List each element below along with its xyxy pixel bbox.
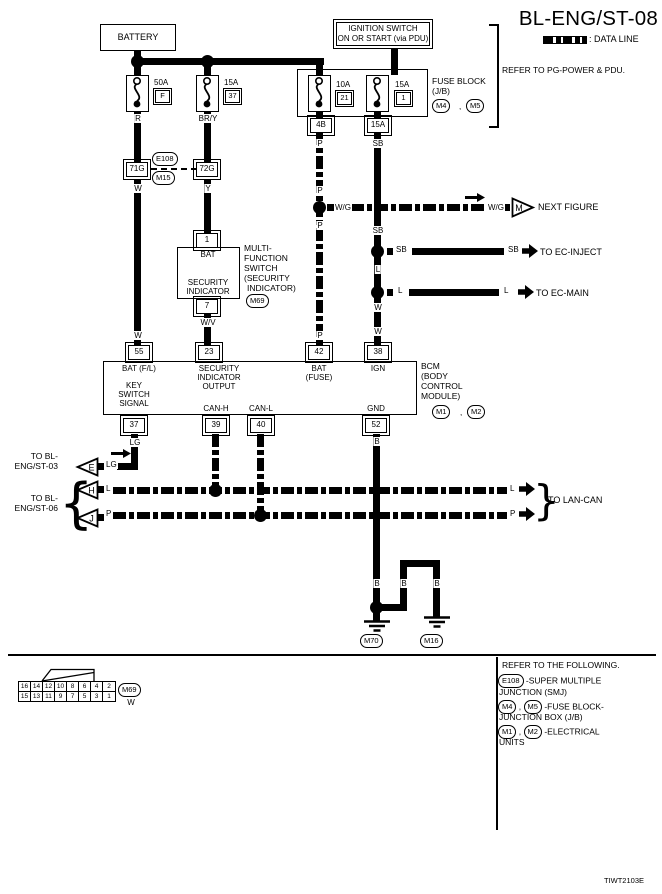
- bcm-pin-38: 38: [367, 345, 389, 360]
- refer-bracket: [497, 24, 499, 128]
- connector-key-tab-icon: [40, 668, 96, 682]
- smj-terminal-72g: 72G: [196, 162, 218, 177]
- wire-label-y: Y: [204, 184, 211, 193]
- st06-line2: ENG/ST-06: [12, 504, 58, 514]
- mfs-bat-label: BAT: [201, 250, 216, 259]
- pin-cell: 4: [91, 682, 103, 692]
- triangle-letter-m: M: [515, 203, 523, 213]
- footer-m45-text: -FUSE BLOCK-: [544, 701, 604, 711]
- wire-sb-branch: [412, 248, 504, 255]
- connector-ref-e108: E108: [152, 152, 178, 166]
- triangle-letter-j: J: [89, 514, 94, 524]
- bcm-label-ign: IGN: [371, 364, 385, 373]
- to-ec-inject-arrow-icon: [522, 244, 538, 258]
- lan-can-label: TO LAN-CAN: [548, 495, 602, 505]
- footer-title: REFER TO THE FOLLOWING.: [502, 661, 620, 671]
- footer-m12-text2: UNITS: [499, 738, 525, 748]
- fuse4-id: 1: [396, 92, 411, 105]
- wire-ignition-down: [391, 49, 398, 75]
- fuse-block-label2: (J/B): [432, 87, 450, 97]
- ground-ref-m70: M70: [360, 634, 383, 648]
- wire-label-w: W: [133, 184, 143, 193]
- ground-ref-m16: M16: [420, 634, 443, 648]
- fuse1-rating: 50A: [154, 78, 168, 87]
- wire-label-p: P: [316, 221, 323, 230]
- pin-cell: 12: [43, 682, 55, 692]
- bcm-pin-37: 37: [123, 418, 145, 433]
- fuse-10a-21: [308, 75, 331, 112]
- comma: ,: [460, 408, 462, 417]
- wire-label-lg: LG: [129, 438, 142, 447]
- wire-battery-feed: [134, 58, 324, 65]
- mfs-pin-7: 7: [196, 299, 218, 314]
- wire-label-p: P: [509, 509, 516, 518]
- pin-cell: 13: [31, 692, 43, 702]
- st03-line2: ENG/ST-03: [12, 462, 58, 472]
- bcm-pin-52: 52: [365, 418, 387, 433]
- connector-pin-view-m69: 16 14 12 10 8 6 4 2 15 13 11 9 7 5 3 1: [18, 681, 116, 702]
- bcm-label-sec2: INDICATOR: [197, 373, 240, 382]
- triangle-letter-e: E: [88, 463, 94, 473]
- next-figure-triangle-icon: M: [511, 197, 535, 218]
- st06-triangle-j-icon: J: [76, 508, 99, 528]
- bcm-pin-39: 39: [205, 418, 227, 433]
- bcm-label-canl: CAN-L: [249, 404, 273, 413]
- junction-dot: [313, 201, 326, 214]
- connector-nub: [387, 289, 393, 296]
- connector-color-label: W: [127, 698, 135, 707]
- junction-dot: [371, 245, 384, 258]
- smj-terminal-71g: 71G: [126, 162, 148, 177]
- wire-label-w: W: [373, 327, 383, 336]
- fuse2-id: 37: [225, 90, 240, 103]
- smj-dash-link: [151, 168, 197, 170]
- fuseblock-terminal-15a: 15A: [367, 118, 389, 133]
- pin-cell: 2: [103, 682, 115, 692]
- bcm-label-bat2: (FUSE): [306, 373, 333, 382]
- fuse-icon: [309, 76, 329, 110]
- connector-ref-m4: M4: [432, 99, 450, 113]
- wire-label-sb: SB: [507, 245, 520, 254]
- page-title: BL-ENG/ST-08: [498, 7, 658, 30]
- section-divider: [8, 654, 656, 656]
- wiring-diagram-page: BL-ENG/ST-08 : DATA LINE REFER TO PG-POW…: [0, 0, 662, 894]
- bcm-label-key1: KEY: [126, 381, 142, 390]
- wire-label-lg: LG: [105, 460, 118, 469]
- fuse-icon: [127, 76, 147, 110]
- wire-label-b: B: [433, 579, 440, 588]
- triangle-letter-h: H: [88, 486, 95, 496]
- footer-m12-text: -ELECTRICAL: [544, 726, 599, 736]
- wire-branch-up: [400, 565, 407, 611]
- wire-lan-p-data: [113, 512, 507, 519]
- wire-71g-pin55: [134, 179, 141, 345]
- flow-arrow-icon: [111, 449, 131, 458]
- pin-cell: 3: [91, 692, 103, 702]
- bcm-pin-23: 23: [198, 345, 220, 360]
- fuse-15a-1: [366, 75, 389, 112]
- fuse-15a-37: [196, 75, 219, 112]
- bcm-pin-40: 40: [250, 418, 272, 433]
- wire-label-sb: SB: [372, 226, 385, 235]
- junction-dot: [131, 55, 144, 68]
- bcm-label-canh: CAN-H: [203, 404, 228, 413]
- wire-label-wg: W/G: [487, 203, 505, 212]
- wire-lan-l-data: [113, 487, 507, 494]
- battery-box: BATTERY: [100, 24, 176, 51]
- footer-m45-text2: JUNCTION BOX (J/B): [499, 713, 583, 723]
- fuse3-rating: 10A: [336, 80, 350, 89]
- connector-ref-m2: M2: [467, 405, 485, 419]
- ec-inject-label: TO EC-INJECT: [540, 247, 602, 257]
- junction-dot: [209, 484, 222, 497]
- mfs-name-line5: INDICATOR): [247, 284, 296, 294]
- pin-cell: 11: [43, 692, 55, 702]
- connector-ref-m69: M69: [246, 294, 269, 308]
- wire-label-sb: SB: [372, 139, 385, 148]
- data-line-sample-icon: [543, 36, 587, 44]
- wire-label-b: B: [400, 579, 407, 588]
- fuse-50a: [126, 75, 149, 112]
- pin-cell: 6: [79, 682, 91, 692]
- connector-ref-m5: M5: [466, 99, 484, 113]
- footer-e108-text2: JUNCTION (SMJ): [499, 688, 567, 698]
- bcm-label-gnd: GND: [367, 404, 385, 413]
- wire-label-wv: W/V: [199, 318, 216, 327]
- fuse4-rating: 15A: [395, 80, 409, 89]
- pin-cell: 8: [67, 682, 79, 692]
- data-line-legend-label: : DATA LINE: [589, 34, 639, 44]
- st06-triangle-h-icon: H: [76, 480, 99, 500]
- wire-label-p: P: [316, 186, 323, 195]
- junction-dot: [370, 601, 383, 614]
- wire-canh-data: [212, 434, 219, 491]
- ignition-switch-box: IGNITION SWITCH ON OR START (via PDU): [333, 19, 433, 49]
- ground-icon: [363, 620, 391, 633]
- bcm-label-bat-fl: BAT (F/L): [122, 364, 156, 373]
- wire-l-branch: [409, 289, 499, 296]
- bcm-label-sec1: SECURITY: [199, 364, 239, 373]
- wire-label-b: B: [373, 437, 380, 446]
- wire-label-p: P: [105, 509, 112, 518]
- wire-label-wg: W/G: [334, 203, 352, 212]
- fuse2-rating: 15A: [224, 78, 238, 87]
- pin-cell: 1: [103, 692, 115, 702]
- fuse-icon: [197, 76, 217, 110]
- bcm-label-key3: SIGNAL: [119, 399, 148, 408]
- footer-ref-e108: E108 -SUPER MULTIPLE: [498, 674, 601, 688]
- fuse3-id: 21: [337, 92, 352, 105]
- wire-label-b: B: [373, 579, 380, 588]
- bcm-name-line4: MODULE): [421, 392, 460, 402]
- wire-sb-ign: [374, 132, 381, 345]
- st06-destination-text: TO BL- ENG/ST-06: [12, 494, 58, 513]
- wire-label-l: L: [503, 286, 509, 295]
- junction-dot: [371, 286, 384, 299]
- flow-arrow-icon: [465, 193, 485, 202]
- mfs-pin-1: 1: [196, 233, 218, 248]
- connector-ref-e108: E108: [498, 674, 524, 688]
- footer-e108-text: -SUPER MULTIPLE: [526, 675, 601, 685]
- wire-label-w: W: [133, 331, 143, 340]
- connector-ref-m69: M69: [118, 683, 141, 697]
- refer-pg-power-note: REFER TO PG-POWER & PDU.: [502, 66, 625, 76]
- wire-label-p: P: [316, 139, 323, 148]
- mfs-security-label1: SECURITY: [188, 278, 228, 287]
- refer-bracket-top-tick: [489, 24, 497, 26]
- bcm-pin-42: 42: [308, 345, 330, 360]
- wire-label-w: W: [373, 303, 383, 312]
- pin-cell: 16: [19, 682, 31, 692]
- connector-ref-m2: M2: [524, 725, 542, 739]
- refer-bracket-bottom-tick: [489, 126, 497, 128]
- bcm-pin-55: 55: [128, 345, 150, 360]
- wire-lg-elbow: [117, 463, 138, 470]
- ec-main-label: TO EC-MAIN: [536, 288, 589, 298]
- ground-icon: [423, 616, 451, 629]
- bcm-label-bat1: BAT: [312, 364, 327, 373]
- pin-cell: 9: [55, 692, 67, 702]
- next-figure-label: NEXT FIGURE: [538, 202, 598, 212]
- connector-ref-m1: M1: [432, 405, 450, 419]
- wire-label-l: L: [397, 286, 403, 295]
- pin-cell: 15: [19, 692, 31, 702]
- comma: ,: [519, 726, 521, 736]
- pin-cell: 7: [67, 692, 79, 702]
- pin-cell: 10: [55, 682, 67, 692]
- pin-cell: 14: [31, 682, 43, 692]
- wire-label-r: R: [134, 114, 142, 123]
- wire-b-m16: [433, 560, 440, 617]
- ignition-line2: ON OR START (via PDU): [334, 34, 432, 44]
- fuseblock-terminal-4b: 4B: [310, 118, 332, 133]
- bcm-label-key2: SWITCH: [118, 390, 150, 399]
- document-code: TIWT2103E: [596, 876, 644, 885]
- wire-label-p: P: [316, 331, 323, 340]
- mfs-security-label2: INDICATOR: [186, 287, 229, 296]
- junction-dot: [254, 509, 267, 522]
- comma: ,: [519, 701, 521, 711]
- wire-label-sb: SB: [395, 245, 408, 254]
- wire-label-l: L: [509, 484, 515, 493]
- wire-label-l: L: [105, 484, 111, 493]
- to-ec-main-arrow-icon: [518, 285, 534, 299]
- ignition-line1: IGNITION SWITCH: [334, 24, 432, 34]
- bcm-label-sec3: OUTPUT: [203, 382, 236, 391]
- wire-label-bry: BR/Y: [198, 114, 219, 123]
- fuse-icon: [367, 76, 387, 110]
- wire-label-l: L: [375, 265, 381, 274]
- wire-feed-fuseblock: [316, 58, 323, 75]
- connector-ref-m15: M15: [152, 171, 175, 185]
- pin-cell: 5: [79, 692, 91, 702]
- comma: ,: [459, 102, 461, 111]
- junction-dot: [201, 55, 214, 68]
- connector-nub: [387, 248, 393, 255]
- wire-p-data: [316, 132, 323, 345]
- fuse1-id: F: [155, 90, 170, 103]
- st03-destination-text: TO BL- ENG/ST-03: [12, 452, 58, 471]
- wire-canl-data: [257, 434, 264, 518]
